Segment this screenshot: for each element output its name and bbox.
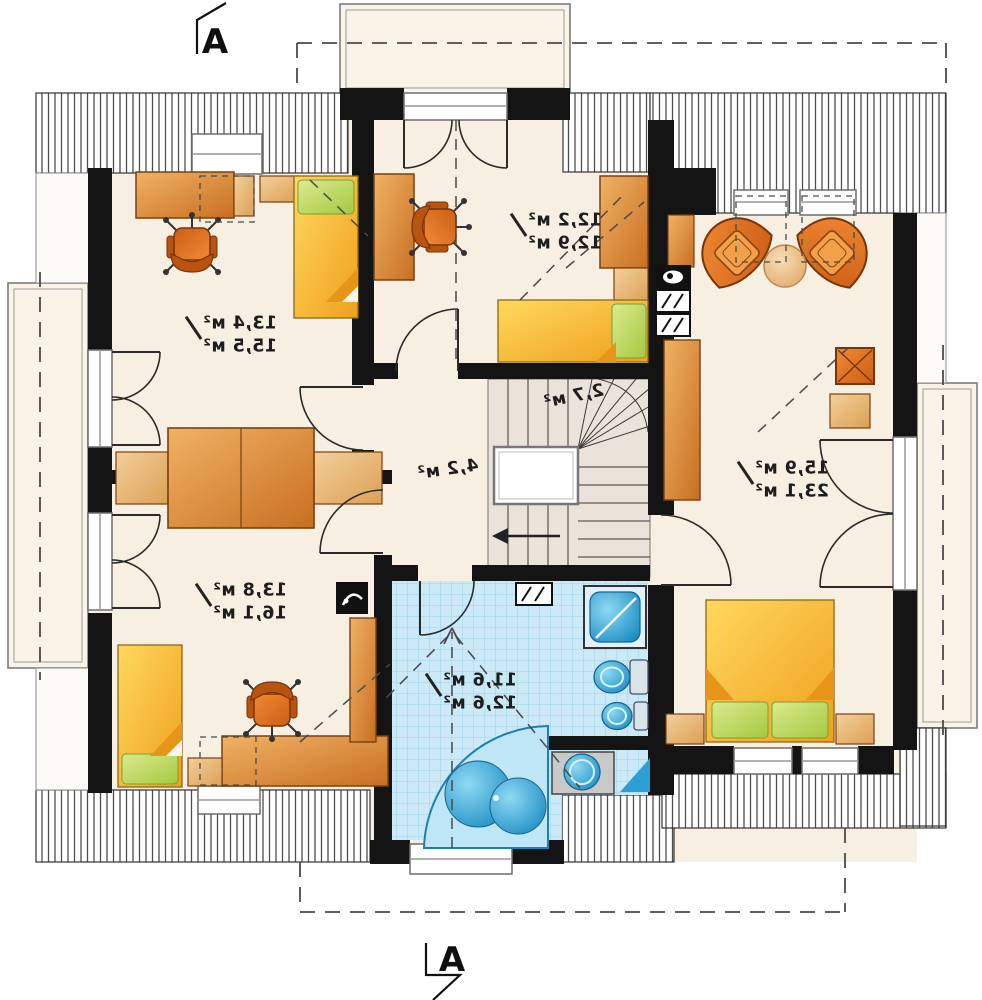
balcony-door-frame-left-2 [88, 513, 112, 610]
bed-double [706, 600, 834, 742]
desk [136, 172, 234, 218]
room-label-bathroom: 11,6 м² 12,6 м² [443, 669, 517, 715]
nightstand [666, 714, 704, 744]
area-secondary: 12,9 м² [528, 232, 602, 255]
nightstand [836, 714, 874, 744]
room-label-right: 15,9 м² 23,1 м² [755, 457, 829, 503]
area-secondary: 23,1 м² [755, 480, 829, 503]
balcony-door-frame-right [893, 437, 917, 590]
bidet [602, 702, 648, 730]
room-label-top-middle: 12,2 м² 12,9 м² [528, 209, 602, 255]
area-primary: 15,9 м² [755, 457, 829, 480]
round-table [764, 245, 806, 287]
area-primary: 13,8 м² [213, 579, 287, 602]
floor-plan: 13,4 м² 15,5 м² 12,2 м² 12,9 м² 15,9 м² … [0, 0, 982, 1000]
window-top-left [192, 134, 262, 174]
area-primary: 13,4 м² [203, 312, 277, 335]
kitchenette-icons [656, 266, 690, 336]
bed-single [294, 176, 358, 318]
area-secondary: 15,5 м² [203, 335, 277, 358]
window-bottom-right-2 [802, 748, 858, 774]
bed-single [118, 645, 182, 787]
area-primary: 12,2 м² [528, 209, 602, 232]
bed-single [498, 300, 648, 362]
tall-cabinet [664, 340, 700, 500]
side-table [830, 394, 870, 428]
window-top-right-1 [734, 190, 788, 215]
window-top-right-2 [800, 190, 856, 215]
room-label-bottom-left: 13,8 м² 16,1 м² [213, 579, 287, 625]
balcony-door-frame-top [404, 93, 507, 120]
desk [222, 736, 388, 786]
section-marker-bottom: A [439, 940, 465, 980]
roof-band-bottom-middle [562, 795, 674, 862]
balcony-left [8, 283, 88, 668]
shelf [614, 268, 648, 304]
washing-machine-icon [516, 583, 552, 605]
section-marker-top: A [202, 22, 228, 62]
balcony-top [340, 4, 570, 94]
floor-plan-drawing [0, 0, 982, 1000]
tv-unit-icon [336, 582, 368, 614]
room-label-top-left: 13,4 м² 15,5 м² [203, 312, 277, 358]
area-secondary: 16,1 м² [213, 602, 287, 625]
area-secondary: 12,6 м² [443, 692, 517, 715]
balcony-door-frame-left-1 [88, 350, 112, 447]
area-primary: 11,6 м² [443, 669, 517, 692]
desk [374, 174, 414, 280]
shower [584, 586, 646, 648]
window-bottom-right-1 [734, 748, 792, 774]
cabinet [668, 215, 694, 267]
balcony-right [917, 383, 977, 728]
sink [552, 752, 614, 794]
stair-void [494, 447, 578, 504]
nightstand [260, 176, 298, 202]
window-bottom-left [198, 786, 260, 814]
toilet [594, 660, 648, 694]
wardrobe [600, 176, 648, 268]
